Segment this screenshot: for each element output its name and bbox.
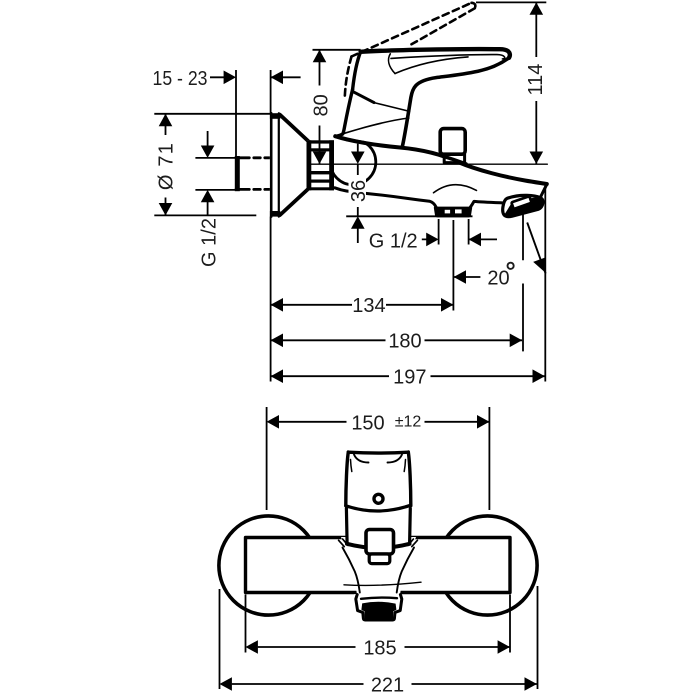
svg-text:221: 221 xyxy=(371,674,404,696)
svg-text:Ø 71: Ø 71 xyxy=(155,142,177,190)
svg-text:36: 36 xyxy=(348,180,370,202)
svg-text:197: 197 xyxy=(393,366,426,388)
svg-text:114: 114 xyxy=(525,64,547,96)
svg-text:180: 180 xyxy=(388,330,421,352)
svg-text:G 1/2: G 1/2 xyxy=(369,231,418,253)
svg-text:15 - 23: 15 - 23 xyxy=(153,68,208,90)
svg-text:±12: ±12 xyxy=(395,413,422,430)
svg-text:150: 150 xyxy=(351,413,384,435)
svg-text:G 1/2: G 1/2 xyxy=(198,218,220,267)
svg-text:134: 134 xyxy=(352,295,385,317)
svg-text:80: 80 xyxy=(310,94,332,116)
svg-text:185: 185 xyxy=(363,637,396,659)
svg-text:20: 20 xyxy=(487,267,509,289)
